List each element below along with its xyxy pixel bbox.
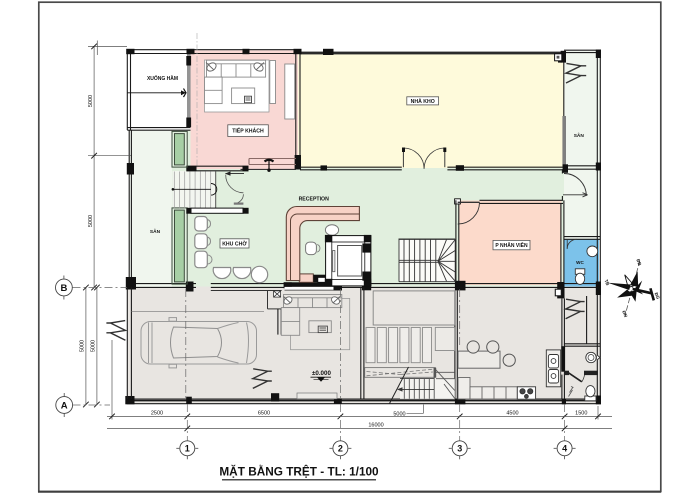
svg-text:5000: 5000	[88, 95, 94, 107]
svg-text:4: 4	[562, 444, 567, 454]
svg-text:5000: 5000	[393, 411, 405, 417]
svg-text:RECEPTION: RECEPTION	[299, 197, 330, 203]
svg-text:MẶT BẰNG TRỆT - TL: 1/100: MẶT BẰNG TRỆT - TL: 1/100	[219, 465, 379, 479]
svg-text:6500: 6500	[258, 411, 270, 417]
svg-text:P NHÂN VIÊN: P NHÂN VIÊN	[495, 241, 528, 249]
svg-text:5000: 5000	[80, 340, 86, 352]
svg-text:5000: 5000	[91, 340, 97, 352]
svg-text:SÂN: SÂN	[150, 228, 161, 235]
svg-text:A: A	[61, 401, 68, 412]
svg-text:3: 3	[457, 444, 462, 454]
svg-text:KHU CHỜ: KHU CHỜ	[222, 240, 247, 248]
svg-text:4500: 4500	[506, 411, 518, 417]
svg-text:XUỐNG HẦM: XUỐNG HẦM	[147, 75, 178, 82]
svg-text:16000: 16000	[368, 423, 383, 429]
svg-text:±0.000: ±0.000	[312, 370, 331, 377]
svg-text:TIẾP KHÁCH: TIẾP KHÁCH	[232, 128, 264, 135]
svg-text:NHÀ KHO: NHÀ KHO	[411, 98, 435, 105]
svg-text:2500: 2500	[151, 411, 163, 417]
svg-text:WC: WC	[576, 260, 584, 265]
svg-text:1500: 1500	[575, 411, 587, 417]
svg-text:B: B	[60, 283, 67, 294]
svg-text:5000: 5000	[88, 215, 94, 227]
svg-text:2: 2	[338, 444, 343, 454]
svg-text:SÂN: SÂN	[574, 132, 585, 139]
svg-text:1: 1	[185, 444, 190, 454]
